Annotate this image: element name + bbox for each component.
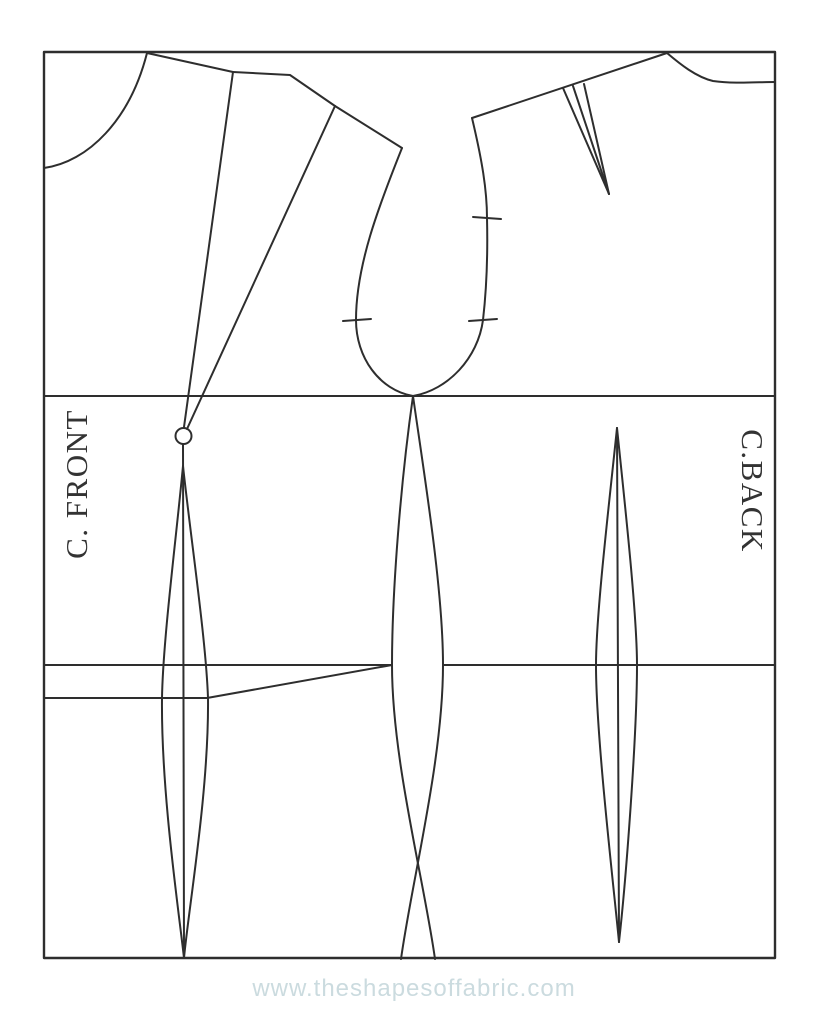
front-shoulder-seam	[147, 53, 233, 72]
front-shoulder-dart-opening	[233, 72, 335, 106]
watermark-text: www.theshapesoffabric.com	[251, 975, 575, 1002]
front-shoulder-dart-leg-left	[184, 72, 233, 427]
front-waist-dart-leg-right	[183, 466, 208, 958]
back-neckline-curve	[667, 53, 775, 83]
front-armhole-notch	[343, 319, 371, 321]
back-shoulder-dart-leg-left	[563, 88, 609, 194]
back-armhole-curve	[413, 118, 487, 396]
pattern-lines	[44, 52, 775, 959]
back-waist-dart-leg-right	[617, 428, 637, 942]
front-neckline-curve	[44, 53, 147, 168]
bust-point-circle	[176, 428, 192, 444]
front-armhole-curve	[356, 148, 413, 396]
back-shoulder-dart-leg-right	[584, 84, 609, 194]
pattern-sheet: C. FRONT C.BACK www.theshapesoffabric.co…	[0, 0, 828, 1024]
back-shoulder-seam	[472, 53, 667, 118]
back-shoulder-dart-centerline	[573, 86, 609, 194]
front-waist-shaping-line	[207, 665, 392, 698]
front-waist-dart-centerline	[183, 444, 184, 958]
back-armhole-notch-upper	[473, 217, 501, 219]
bodice-pattern-diagram: C. FRONT C.BACK www.theshapesoffabric.co…	[0, 0, 828, 1024]
front-shoulder-dart-leg-right	[187, 106, 335, 429]
center-back-label: C.BACK	[735, 429, 770, 553]
back-armhole-notch-lower	[469, 319, 497, 321]
pattern-labels: C. FRONT C.BACK	[59, 409, 770, 559]
front-waist-dart-leg-left	[162, 466, 184, 958]
back-waist-dart-centerline	[617, 428, 619, 942]
side-dart-leg-left	[392, 396, 435, 959]
center-front-label: C. FRONT	[59, 409, 94, 559]
front-shoulder-seam-outer	[335, 106, 402, 148]
back-waist-dart-leg-left	[596, 428, 619, 942]
side-dart-leg-right	[401, 396, 443, 959]
